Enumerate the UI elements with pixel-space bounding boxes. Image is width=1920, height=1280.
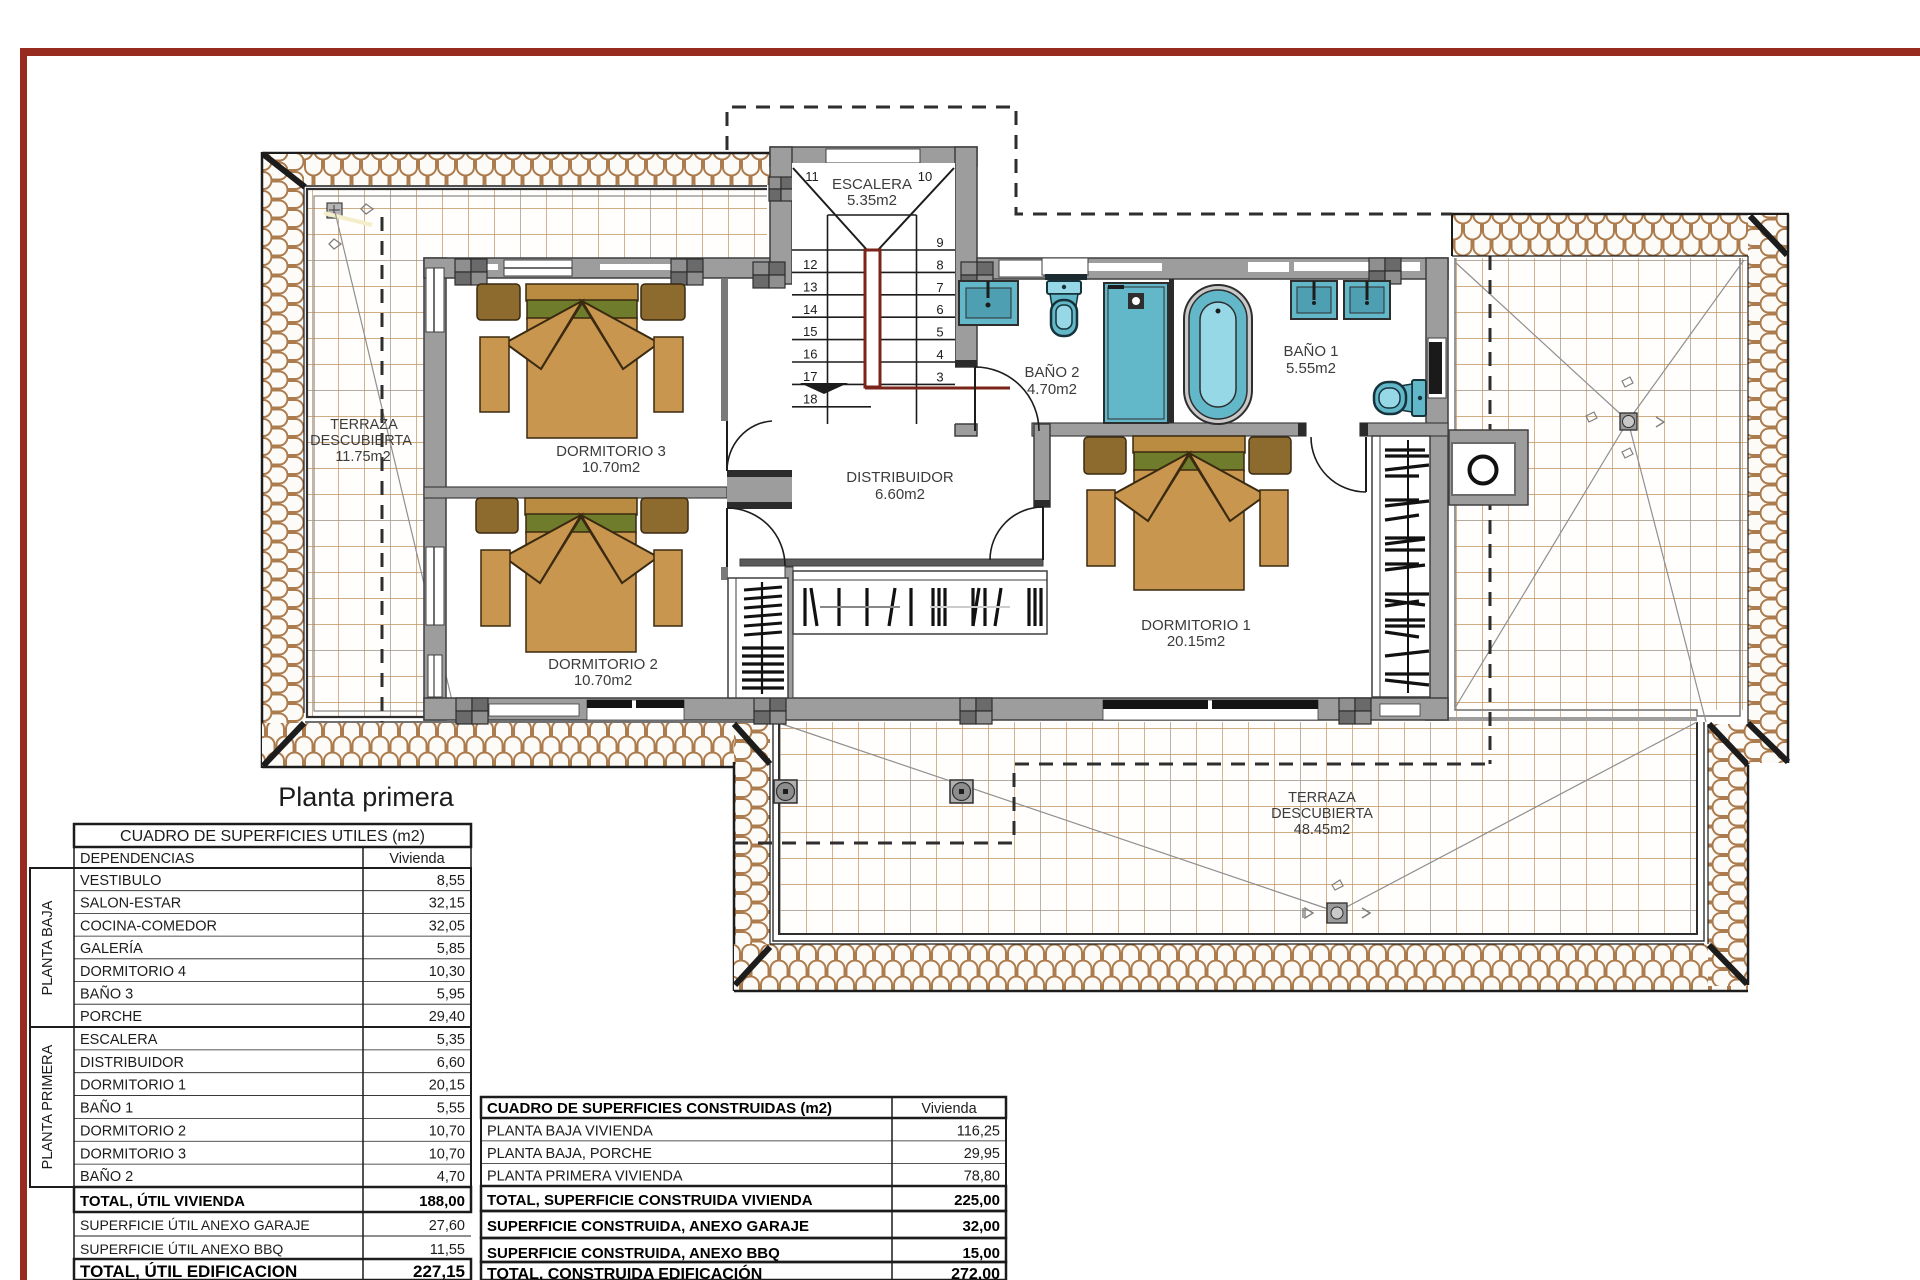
svg-text:188,00: 188,00	[419, 1193, 465, 1210]
svg-text:227,15: 227,15	[413, 1262, 465, 1280]
svg-text:29,95: 29,95	[964, 1146, 1000, 1162]
svg-text:BAÑO 3: BAÑO 3	[80, 986, 133, 1003]
svg-text:15: 15	[803, 324, 817, 339]
svg-text:10,70: 10,70	[429, 1123, 465, 1139]
svg-text:SUPERFICIE ÚTIL ANEXO GARAJE: SUPERFICIE ÚTIL ANEXO GARAJE	[80, 1217, 310, 1233]
svg-text:DORMITORIO 4: DORMITORIO 4	[80, 964, 186, 980]
svg-text:TERRAZA: TERRAZA	[330, 417, 398, 433]
svg-text:11,55: 11,55	[430, 1242, 465, 1258]
svg-text:BAÑO 2: BAÑO 2	[1024, 364, 1079, 381]
svg-text:5,95: 5,95	[437, 987, 465, 1003]
svg-text:18: 18	[803, 391, 817, 406]
svg-text:8,55: 8,55	[437, 873, 465, 889]
svg-text:9: 9	[936, 235, 943, 250]
svg-text:DORMITORIO 1: DORMITORIO 1	[80, 1078, 186, 1094]
svg-text:DORMITORIO 1: DORMITORIO 1	[1141, 617, 1251, 634]
svg-text:SALON-ESTAR: SALON-ESTAR	[80, 896, 181, 912]
svg-text:5.55m2: 5.55m2	[1286, 360, 1336, 377]
svg-text:11.75m2: 11.75m2	[335, 449, 390, 465]
svg-text:SUPERFICIE CONSTRUIDA, ANEXO B: SUPERFICIE CONSTRUIDA, ANEXO BBQ	[487, 1245, 780, 1262]
svg-text:78,80: 78,80	[964, 1169, 1000, 1185]
svg-text:TOTAL, SUPERFICIE CONSTRUIDA V: TOTAL, SUPERFICIE CONSTRUIDA VIVIENDA	[487, 1192, 813, 1209]
svg-text:VESTIBULO: VESTIBULO	[80, 873, 161, 889]
svg-text:SUPERFICIE ÚTIL ANEXO BBQ: SUPERFICIE ÚTIL ANEXO BBQ	[80, 1241, 283, 1257]
svg-text:5,35: 5,35	[437, 1032, 465, 1048]
svg-text:29,40: 29,40	[429, 1009, 465, 1025]
svg-text:12: 12	[803, 257, 817, 272]
svg-text:DESCUBIERTA: DESCUBIERTA	[310, 433, 412, 449]
svg-text:CUADRO DE SUPERFICIES CONSTRUI: CUADRO DE SUPERFICIES CONSTRUIDAS (m2)	[487, 1100, 832, 1117]
svg-text:17: 17	[803, 369, 817, 384]
svg-text:TOTAL, CONSTRUIDA EDIFICACIÓN: TOTAL, CONSTRUIDA EDIFICACIÓN	[487, 1264, 762, 1280]
svg-text:TERRAZA: TERRAZA	[1288, 790, 1356, 806]
svg-text:Vivienda: Vivienda	[921, 1101, 977, 1117]
svg-text:DEPENDENCIAS: DEPENDENCIAS	[80, 851, 194, 867]
svg-text:20.15m2: 20.15m2	[1167, 633, 1225, 650]
svg-text:16: 16	[803, 347, 817, 362]
svg-text:4: 4	[936, 347, 943, 362]
svg-text:DISTRIBUIDOR: DISTRIBUIDOR	[846, 469, 954, 486]
svg-text:48.45m2: 48.45m2	[1294, 822, 1350, 838]
svg-text:6.60m2: 6.60m2	[875, 486, 925, 503]
svg-text:TOTAL, ÚTIL EDIFICACION: TOTAL, ÚTIL EDIFICACION	[80, 1262, 297, 1280]
svg-text:ESCALERA: ESCALERA	[80, 1032, 158, 1048]
svg-text:PORCHE: PORCHE	[80, 1009, 142, 1025]
svg-text:DISTRIBUIDOR: DISTRIBUIDOR	[80, 1055, 184, 1071]
svg-text:PLANTA BAJA: PLANTA BAJA	[40, 900, 56, 995]
svg-text:PLANTA BAJA, PORCHE: PLANTA BAJA, PORCHE	[487, 1146, 652, 1162]
svg-text:5.35m2: 5.35m2	[847, 192, 897, 209]
svg-text:PLANTA PRIMERA VIVIENDA: PLANTA PRIMERA VIVIENDA	[487, 1169, 683, 1185]
svg-text:COCINA-COMEDOR: COCINA-COMEDOR	[80, 918, 217, 934]
svg-text:5,85: 5,85	[437, 941, 465, 957]
svg-text:7: 7	[936, 280, 943, 295]
svg-text:4.70m2: 4.70m2	[1027, 381, 1077, 398]
svg-text:DORMITORIO 2: DORMITORIO 2	[548, 656, 658, 673]
svg-text:3: 3	[936, 369, 943, 384]
svg-text:DORMITORIO 2: DORMITORIO 2	[80, 1123, 186, 1139]
svg-text:PLANTA BAJA VIVIENDA: PLANTA BAJA VIVIENDA	[487, 1123, 653, 1139]
svg-text:DESCUBIERTA: DESCUBIERTA	[1271, 806, 1373, 822]
svg-text:10.70m2: 10.70m2	[574, 672, 632, 689]
svg-text:14: 14	[803, 302, 817, 317]
svg-text:8: 8	[936, 257, 943, 272]
svg-text:5: 5	[936, 325, 943, 340]
svg-text:15,00: 15,00	[962, 1245, 1000, 1262]
svg-text:272,00: 272,00	[951, 1266, 1000, 1280]
svg-text:6: 6	[936, 302, 943, 317]
svg-text:PLANTA PRIMERA: PLANTA PRIMERA	[40, 1044, 56, 1169]
svg-text:Planta primera: Planta primera	[278, 782, 455, 812]
svg-text:BAÑO 1: BAÑO 1	[80, 1100, 133, 1117]
svg-text:5,55: 5,55	[437, 1101, 465, 1117]
svg-text:10: 10	[918, 169, 932, 184]
svg-text:BAÑO 1: BAÑO 1	[1283, 343, 1338, 360]
svg-text:DORMITORIO 3: DORMITORIO 3	[556, 443, 666, 460]
svg-text:CUADRO DE SUPERFICIES UTILES (: CUADRO DE SUPERFICIES UTILES (m2)	[120, 828, 425, 845]
svg-text:GALERÍA: GALERÍA	[80, 940, 143, 957]
svg-text:SUPERFICIE CONSTRUIDA, ANEXO G: SUPERFICIE CONSTRUIDA, ANEXO GARAJE	[487, 1218, 809, 1235]
svg-text:225,00: 225,00	[954, 1192, 1000, 1209]
svg-text:32,00: 32,00	[962, 1218, 1000, 1235]
svg-text:13: 13	[803, 279, 817, 294]
svg-text:6,60: 6,60	[437, 1055, 465, 1071]
svg-text:ESCALERA: ESCALERA	[832, 176, 912, 193]
svg-text:4,70: 4,70	[437, 1169, 465, 1185]
svg-text:20,15: 20,15	[429, 1078, 465, 1094]
svg-text:116,25: 116,25	[957, 1123, 1000, 1139]
svg-text:BAÑO 2: BAÑO 2	[80, 1168, 133, 1185]
svg-text:10,70: 10,70	[429, 1146, 465, 1162]
svg-text:27,60: 27,60	[429, 1218, 465, 1234]
svg-text:Vivienda: Vivienda	[389, 851, 445, 867]
svg-text:10,30: 10,30	[429, 964, 465, 980]
svg-text:32,15: 32,15	[429, 896, 465, 912]
svg-text:TOTAL, ÚTIL VIVIENDA: TOTAL, ÚTIL VIVIENDA	[80, 1192, 245, 1210]
svg-text:DORMITORIO 3: DORMITORIO 3	[80, 1146, 186, 1162]
svg-text:10.70m2: 10.70m2	[582, 459, 640, 476]
svg-text:32,05: 32,05	[429, 918, 465, 934]
svg-text:11: 11	[805, 169, 819, 184]
